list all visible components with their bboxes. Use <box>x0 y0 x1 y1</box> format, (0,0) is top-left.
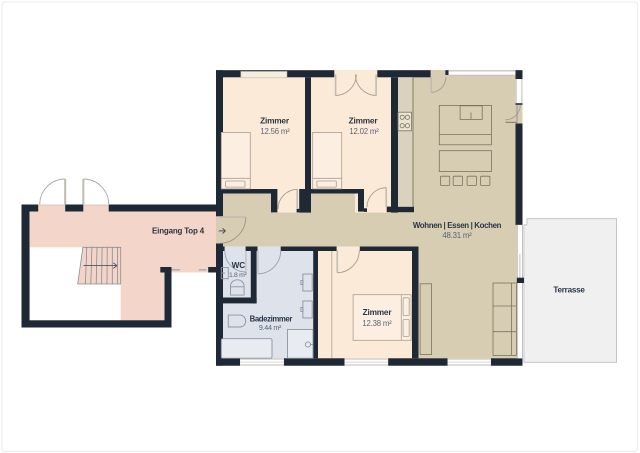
svg-text:Eingang Top 4: Eingang Top 4 <box>152 226 205 235</box>
svg-text:Zimmer: Zimmer <box>260 116 290 126</box>
svg-text:12.02 m²: 12.02 m² <box>349 127 379 136</box>
svg-text:1.8 m²: 1.8 m² <box>229 272 247 279</box>
svg-text:12.38 m²: 12.38 m² <box>362 319 392 328</box>
svg-text:Terrasse: Terrasse <box>553 286 585 295</box>
svg-text:9.44 m²: 9.44 m² <box>259 323 282 332</box>
svg-text:Wohnen | Essen | Kochen: Wohnen | Essen | Kochen <box>413 221 502 230</box>
svg-text:Zimmer: Zimmer <box>349 116 379 126</box>
svg-text:12.56 m²: 12.56 m² <box>260 127 290 136</box>
svg-text:Zimmer: Zimmer <box>363 307 393 317</box>
svg-text:48.31 m²: 48.31 m² <box>442 231 472 240</box>
svg-text:WC: WC <box>232 261 246 270</box>
